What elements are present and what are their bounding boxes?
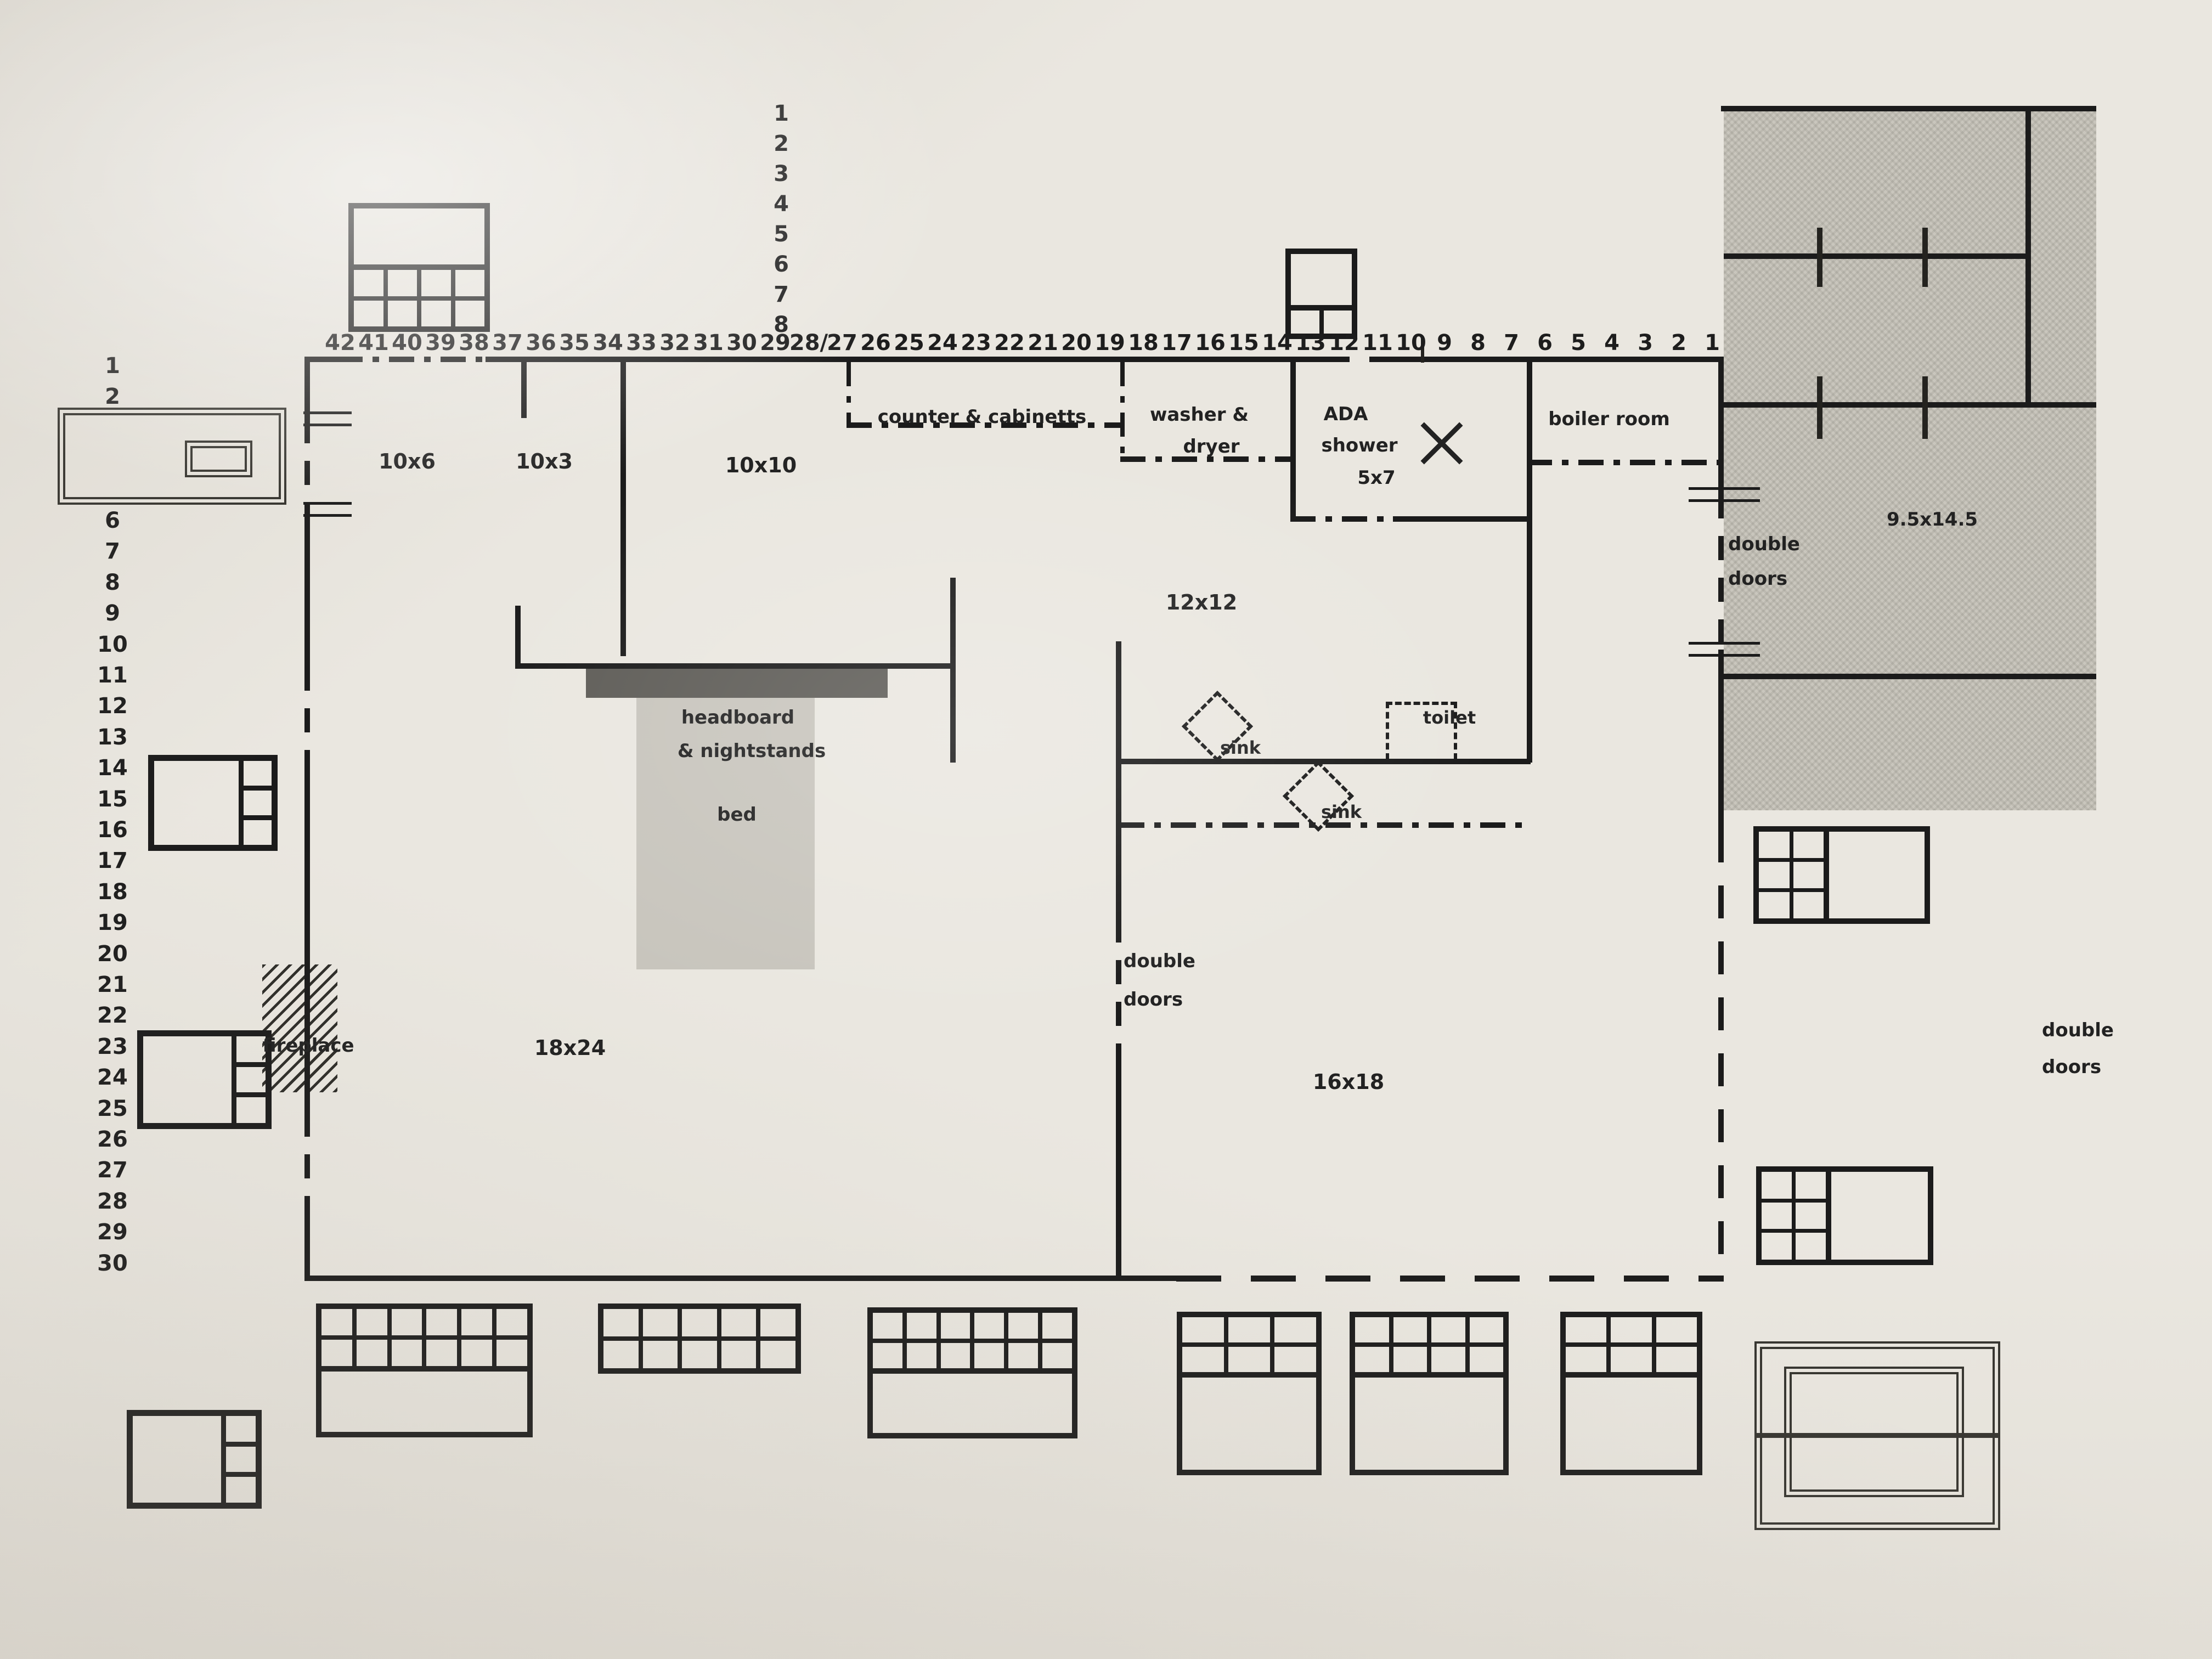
bed-symbol-3 [127,1410,262,1509]
label-counter-cabinets: counter & cabinetts [878,406,1086,428]
sofa-symbol [58,408,286,505]
storage-wall-north [1721,106,2096,111]
top-ruler-number: 29 [760,330,791,356]
label-headboard-line1: headboard [681,707,794,729]
wall-north-dashdot [337,357,486,362]
label-ada-line2: shower [1321,435,1397,456]
storage-wall-h2 [1724,402,2096,408]
left-ruler-number: 15 [97,787,128,812]
top-ruler-number: 40 [392,330,422,356]
top-ruler-number: 27 [827,330,857,356]
sideboard-right-2 [1756,1166,1933,1265]
storage-wall-v [2025,106,2031,408]
wall-north-east [1381,357,1724,362]
storage-tick-1 [1817,228,1822,287]
top-ruler-number: 9 [1437,330,1452,356]
wall-east-2 [1718,650,1724,830]
door-tick-east-lower [1689,642,1760,657]
bottom-table-6-grid [1560,1312,1702,1378]
top-ruler-number: 36 [526,330,556,356]
wall-west-opening-1 [304,419,310,504]
fireplace-hatch [262,964,337,1092]
left-ruler-number: 28 [97,1189,128,1214]
table-with-chairs-top-left-grid [348,264,490,332]
bottom-table-4-rect [1177,1378,1322,1475]
vertical-ruler-number: 2 [774,131,789,156]
left-ruler-number: 24 [97,1065,128,1090]
wall-boiler-south-dashdot [1527,460,1718,465]
top-ruler-number: 19 [1094,330,1125,356]
top-ruler-number: 8 [1470,330,1486,356]
left-ruler-number: 6 [105,508,120,533]
wall-ada-east [1527,357,1532,763]
storage-wall-h1 [1724,253,2031,259]
bottom-table-5-rect [1350,1378,1509,1475]
left-ruler-number: 23 [97,1034,128,1059]
left-ruler-number: 10 [97,632,128,657]
top-ruler-number: 20 [1061,330,1092,356]
bottom-table-2-grid [598,1304,801,1374]
wall-16x18-west-solid-upper [1116,641,1121,918]
left-ruler-number: 9 [105,601,120,626]
wall-west-2 [304,504,310,667]
door-tick-west-lower [303,502,352,517]
storage-tick-2 [1922,228,1928,287]
left-ruler-number: 17 [97,848,128,873]
left-ruler-number: 7 [105,539,120,564]
top-ruler-number: 34 [592,330,623,356]
top-ruler-number: 25 [894,330,924,356]
partition-counter-west [847,362,851,426]
label-boiler-room: boiler room [1548,408,1670,430]
vertical-ruler-number: 4 [774,191,789,217]
bed-symbol-2 [137,1030,272,1129]
vertical-ruler-number: 5 [774,222,789,247]
top-ruler-number: 33 [626,330,657,356]
top-ruler-number: 2 [1671,330,1686,356]
top-ruler-number: 3 [1638,330,1653,356]
bottom-table-6-rect [1560,1378,1702,1475]
left-ruler-number: 21 [97,972,128,997]
vertical-ruler-number: 1 [774,101,789,126]
left-ruler-number: 13 [97,725,128,750]
large-table-right [1754,1341,2000,1530]
wall-west-opening-2 [304,667,310,757]
wall-headboard [515,663,956,669]
room-label-10x10: 10x10 [725,453,797,477]
wall-ada-south-dashdot [1290,516,1393,522]
label-fireplace: fireplace [262,1035,354,1057]
floor-plan-photo: { "document": {"kind": "hand-drafted flo… [0,0,2212,1659]
wall-west-4 [304,1217,310,1281]
table-with-chairs-top-left [348,203,490,264]
top-ruler-number: 35 [559,330,590,356]
bottom-table-3-rect [867,1374,1077,1438]
top-ruler-number: 24 [927,330,958,356]
vertical-ruler-number: 8 [774,312,789,337]
wall-west-opening-3 [304,1113,310,1217]
label-sink-1: sink [1220,737,1261,758]
storage-tick-3 [1817,376,1822,439]
wall-south-solid [304,1276,1176,1281]
top-ruler-number: 17 [1161,330,1192,356]
top-ruler-number: 7 [1504,330,1519,356]
vertical-ruler-number: 6 [774,252,789,277]
left-ruler-number: 27 [97,1158,128,1183]
top-ruler-number: 31 [693,330,724,356]
left-ruler-number: 16 [97,817,128,843]
vertical-ruler-number: 7 [774,282,789,307]
top-ruler-number: 42 [325,330,356,356]
room-label-10x6: 10x6 [379,449,436,473]
wall-north-main [486,357,1321,362]
left-ruler-number: 2 [105,384,120,409]
wall-16x18-double-doors [1116,918,1121,1054]
left-ruler-number: 11 [97,663,128,688]
vertical-ruler-number: 3 [774,161,789,187]
top-ruler-number: 5 [1571,330,1586,356]
top-ruler-number: 22 [994,330,1025,356]
room-label-16x18: 16x18 [1313,1070,1384,1094]
table-top-center [1285,249,1357,305]
top-ruler-number: 4 [1604,330,1620,356]
label-ada-line3: 5x7 [1357,467,1395,489]
label-double-doors-right-line1: double [2042,1019,2114,1041]
top-ruler-number: 21 [1028,330,1058,356]
wall-bedroom-east [950,578,956,763]
headboard-nightstands-bar [586,667,888,698]
label-headboard-line2: & nightstands [678,740,826,762]
wall-west-1 [304,357,310,419]
label-double-doors-storage-line1: double [1728,533,1800,555]
storage-building-fill [1724,106,2096,810]
top-ruler-number: 1 [1705,330,1720,356]
wall-stub-closet [515,606,521,669]
label-double-doors-16x18-line2: doors [1124,989,1183,1011]
bottom-table-1-grid [316,1304,533,1372]
top-ruler-number: 15 [1228,330,1259,356]
wall-16x18-west-solid-lower [1116,1054,1121,1281]
top-ruler-number: 28/ [789,330,828,356]
left-ruler-number: 25 [97,1096,128,1121]
wall-east-dashed-lower [1718,830,1724,1281]
label-double-doors-right-line2: doors [2042,1056,2101,1078]
left-ruler-number: 29 [97,1220,128,1245]
top-ruler-number: 26 [860,330,891,356]
wall-10x3-10x10 [620,357,626,656]
bed-area-fill [636,698,815,969]
left-ruler-number: 19 [97,910,128,935]
wall-north-door-dashed [1321,357,1381,362]
table-top-center-grid [1285,305,1357,339]
top-ruler-number: 11 [1362,330,1393,356]
label-bed: bed [717,804,757,826]
left-ruler-number: 8 [105,570,120,595]
sideboard-right-1 [1753,826,1930,924]
bed-symbol-1 [148,755,278,851]
wall-ada-south-solid [1393,516,1532,522]
room-label-18x24: 18x24 [534,1036,606,1060]
door-tick-east-upper [1689,487,1760,502]
top-ruler-number: 38 [459,330,489,356]
left-ruler-number: 30 [97,1251,128,1276]
wall-bath-south [1116,759,1531,764]
wall-stub-10x6-10x3 [521,357,527,418]
label-washer-line2: dryer [1183,436,1239,458]
wall-east-1 [1718,357,1724,494]
bottom-table-4-grid [1177,1312,1322,1378]
room-label-10x3: 10x3 [516,449,573,473]
left-ruler-number: 12 [97,693,128,719]
partition-washer-west [1120,362,1125,460]
left-ruler-number: 18 [97,879,128,905]
top-ruler-number: 39 [425,330,456,356]
room-label-9_5x14_5: 9.5x14.5 [1887,509,1978,531]
top-ruler-number: 6 [1537,330,1553,356]
storage-tick-4 [1922,376,1928,439]
bottom-table-5-grid [1350,1312,1509,1378]
ruler-ten-tick [1421,337,1424,363]
bottom-table-3-grid [867,1307,1077,1374]
top-ruler-number: 32 [659,330,690,356]
left-ruler-number: 20 [97,941,128,967]
label-ada-line1: ADA [1324,403,1368,425]
top-ruler-number: 16 [1195,330,1226,356]
left-ruler-number: 1 [105,353,120,379]
top-ruler-number: 23 [961,330,991,356]
sofa-inner-rect [185,441,252,477]
storage-wall-h3 [1724,674,2096,679]
wall-ada-west [1290,357,1296,522]
top-ruler-number: 18 [1128,330,1159,356]
label-double-doors-16x18-line1: double [1124,950,1195,972]
wall-west-3 [304,757,310,1113]
door-tick-west-upper [303,411,352,426]
wall-east-double-doors [1718,494,1724,650]
room-label-12x12: 12x12 [1166,590,1237,614]
top-ruler-number: 30 [726,330,757,356]
label-sink-2: sink [1321,802,1362,822]
left-ruler-number: 14 [97,755,128,781]
left-ruler-number: 22 [97,1003,128,1028]
wall-south-dashed [1176,1276,1724,1282]
top-ruler-number: 41 [358,330,389,356]
left-ruler-number: 26 [97,1127,128,1152]
label-toilet: toilet [1423,707,1476,728]
bottom-table-1-rect [316,1372,533,1437]
label-washer-line1: washer & [1150,404,1249,426]
label-double-doors-storage-line2: doors [1728,568,1787,590]
top-ruler-number: 37 [492,330,523,356]
